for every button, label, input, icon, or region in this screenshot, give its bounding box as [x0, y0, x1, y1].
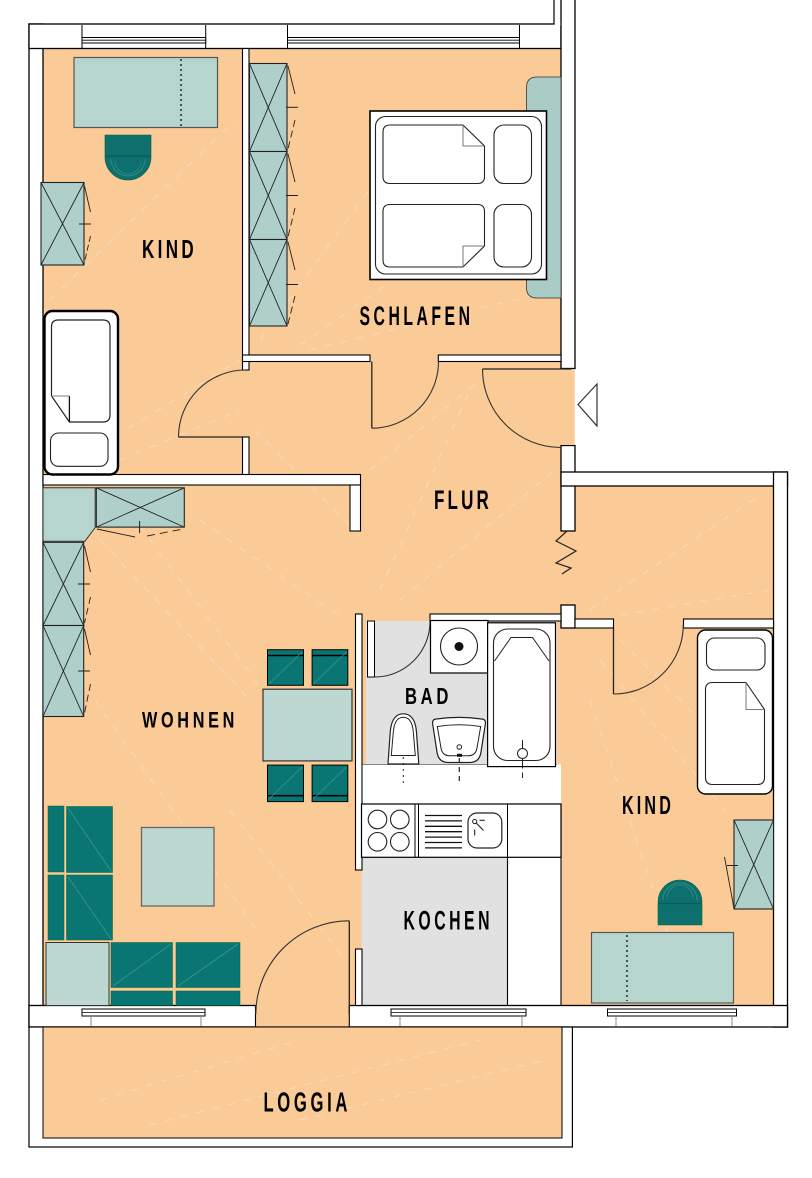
svg-text:WOHNEN: WOHNEN [142, 708, 238, 733]
svg-text:SCHLAFEN: SCHLAFEN [360, 301, 474, 331]
svg-text:KIND: KIND [622, 792, 674, 820]
svg-text:KOCHEN: KOCHEN [404, 906, 494, 936]
svg-text:KIND: KIND [142, 236, 197, 264]
svg-text:BAD: BAD [405, 683, 452, 709]
svg-text:LOGGIA: LOGGIA [264, 1087, 352, 1118]
svg-text:FLUR: FLUR [434, 485, 492, 515]
